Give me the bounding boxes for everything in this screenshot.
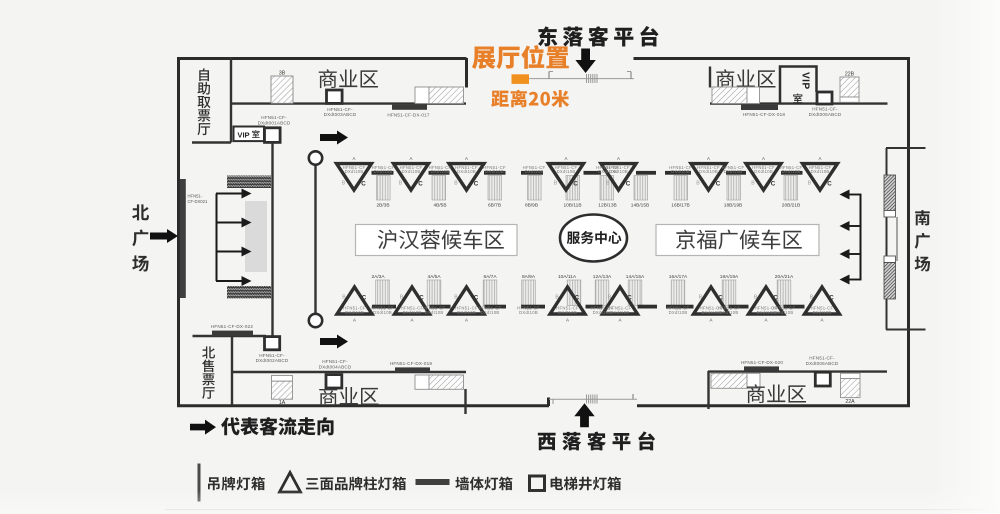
svg-text:C: C (773, 295, 778, 302)
svg-text:16A/17A: 16A/17A (669, 274, 688, 280)
svg-text:A: A (762, 156, 765, 161)
svg-text:A: A (710, 318, 713, 323)
svg-text:3B: 3B (279, 71, 286, 77)
svg-text:DXdt10B: DXdt10B (425, 310, 444, 315)
svg-text:DXdt10B: DXdt10B (813, 310, 832, 315)
svg-text:C: C (829, 295, 834, 302)
svg-text:HFN51-CF-DX-019: HFN51-CF-DX-019 (390, 361, 433, 366)
svg-text:HFN51-: HFN51- (188, 194, 203, 199)
svg-text:10A/11A: 10A/11A (558, 274, 577, 280)
svg-text:HFN51-CF-DX-018: HFN51-CF-DX-018 (743, 112, 786, 117)
svg-text:B: B (808, 181, 812, 187)
svg-text:B: B (454, 181, 458, 187)
svg-text:DXdt005ABCD: DXdt005ABCD (809, 112, 842, 117)
svg-text:A: A (353, 156, 356, 161)
svg-text:HFN51-CF-DX-017: HFN51-CF-DX-017 (387, 113, 430, 118)
svg-text:B: B (342, 295, 346, 301)
svg-text:B: B (554, 181, 558, 187)
svg-text:DXdt10B: DXdt10B (457, 310, 476, 315)
svg-text:22A: 22A (845, 399, 855, 405)
svg-text:B: B (608, 295, 612, 301)
svg-text:HFN51-CF-: HFN51-CF- (322, 359, 348, 364)
svg-text:8A/9A: 8A/9A (522, 274, 536, 280)
svg-text:A: A (566, 318, 569, 323)
svg-text:DXdt10B: DXdt10B (593, 310, 612, 315)
svg-text:DXdt10B: DXdt10B (782, 169, 801, 174)
svg-text:DXdt10B: DXdt10B (485, 169, 504, 174)
svg-text:C: C (575, 295, 580, 302)
svg-text:DXdt10B: DXdt10B (557, 169, 576, 174)
svg-text:DXdt10B: DXdt10B (611, 310, 630, 315)
svg-text:B: B (699, 295, 703, 301)
svg-text:DXdt10B: DXdt10B (724, 169, 743, 174)
svg-text:C: C (474, 295, 479, 302)
svg-text:18B/19B: 18B/19B (724, 203, 742, 209)
svg-text:B: B (754, 295, 758, 301)
svg-text:B: B (454, 295, 458, 301)
svg-text:A: A (821, 318, 824, 323)
svg-text:18A/19A: 18A/19A (720, 274, 739, 280)
svg-text:4A/5A: 4A/5A (427, 274, 441, 280)
svg-text:14A/15A: 14A/15A (626, 274, 645, 280)
svg-text:B: B (696, 181, 700, 187)
svg-text:B: B (751, 181, 755, 187)
svg-text:C: C (626, 181, 631, 188)
svg-text:HFN51-CF-DX-020: HFN51-CF-DX-020 (741, 360, 784, 365)
svg-text:DXdt10B: DXdt10B (431, 169, 450, 174)
svg-text:C: C (827, 181, 832, 188)
svg-text:A: A (819, 156, 822, 161)
svg-text:DXdt10B: DXdt10B (669, 310, 688, 315)
svg-text:C: C (718, 295, 723, 302)
svg-text:VIP: VIP (237, 130, 249, 139)
svg-text:6B/7B: 6B/7B (488, 203, 501, 209)
svg-text:DXdt10B: DXdt10B (598, 169, 617, 174)
svg-text:DXdt10B: DXdt10B (345, 169, 364, 174)
svg-text:HFN51-CF-DX-022: HFN51-CF-DX-022 (211, 324, 254, 329)
svg-text:2B/3B: 2B/3B (376, 203, 389, 209)
svg-text:DXdt10B: DXdt10B (671, 169, 690, 174)
svg-text:20B/21B: 20B/21B (782, 203, 800, 209)
svg-text:DXdt002ABCD: DXdt002ABCD (256, 358, 289, 363)
svg-text:C: C (627, 295, 632, 302)
svg-text:A: A (410, 156, 413, 161)
svg-text:A: A (465, 156, 468, 161)
svg-text:8B/9B: 8B/9B (525, 203, 538, 209)
svg-text:6A/7A: 6A/7A (483, 274, 497, 280)
svg-text:DXdt10B: DXdt10B (525, 169, 544, 174)
svg-text:DXdt10B: DXdt10B (374, 169, 393, 174)
svg-text:DXdt10B: DXdt10B (775, 310, 794, 315)
svg-text:DXdt10B: DXdt10B (811, 169, 830, 174)
svg-text:C: C (474, 181, 479, 188)
svg-text:B: B (342, 181, 346, 187)
svg-text:C: C (771, 181, 776, 188)
svg-text:16B/17B: 16B/17B (671, 203, 689, 209)
svg-text:A: A (765, 318, 768, 323)
svg-text:DXdt001ABCD: DXdt001ABCD (258, 121, 291, 126)
svg-text:1A: 1A (279, 400, 286, 406)
svg-text:HFN51-CF-: HFN51-CF- (812, 107, 838, 112)
svg-text:DXdt003ABCD: DXdt003ABCD (324, 112, 357, 117)
svg-text:DXdt10B: DXdt10B (519, 310, 538, 315)
svg-text:DXdt10B: DXdt10B (373, 310, 392, 315)
svg-text:B: B (400, 295, 404, 301)
svg-text:HFN51-CF-: HFN51-CF- (809, 356, 835, 361)
svg-text:C: C (573, 181, 578, 188)
svg-text:10B/11B: 10B/11B (563, 203, 581, 209)
svg-text:HFN51-CF-: HFN51-CF- (261, 115, 287, 120)
svg-text:DXdt10B: DXdt10B (403, 310, 422, 315)
svg-text:12A/13A: 12A/13A (593, 274, 612, 280)
svg-text:DXdt10B: DXdt10B (720, 310, 739, 315)
svg-text:22B: 22B (845, 72, 855, 78)
svg-text:DXdt10B: DXdt10B (402, 169, 421, 174)
svg-text:20A/21A: 20A/21A (775, 274, 794, 280)
svg-text:DXdt10B: DXdt10B (558, 310, 577, 315)
svg-text:14B/15B: 14B/15B (631, 203, 649, 209)
svg-text:C: C (361, 181, 366, 188)
svg-text:B: B (555, 295, 559, 301)
svg-text:C: C (419, 295, 424, 302)
svg-text:A: A (411, 318, 414, 323)
svg-text:DXdt10B: DXdt10B (699, 169, 718, 174)
svg-text:A: A (707, 156, 710, 161)
svg-text:B: B (810, 295, 814, 301)
svg-text:HFN51-CF-: HFN51-CF- (327, 107, 353, 112)
svg-text:VIP: VIP (800, 72, 811, 90)
svg-text:12B/13B: 12B/13B (598, 203, 616, 209)
svg-text:A: A (619, 318, 622, 323)
svg-text:A: A (465, 318, 468, 323)
svg-text:A: A (353, 318, 356, 323)
svg-text:C: C (418, 181, 423, 188)
svg-text:B: B (606, 181, 610, 187)
svg-text:2A/3A: 2A/3A (371, 274, 385, 280)
svg-text:HFN51-CF-: HFN51-CF- (259, 353, 285, 358)
svg-text:DXdt004ABCD: DXdt004ABCD (319, 364, 352, 369)
svg-text:DXdt10B: DXdt10B (754, 169, 773, 174)
svg-text:CF-DX021: CF-DX021 (188, 199, 208, 204)
svg-text:DXdt10B: DXdt10B (457, 169, 476, 174)
svg-text:4B/5B: 4B/5B (433, 203, 446, 209)
svg-text:A: A (617, 156, 620, 161)
svg-text:DXdt006ABCD: DXdt006ABCD (806, 361, 839, 366)
svg-text:DXdt10B: DXdt10B (481, 310, 500, 315)
svg-text:B: B (399, 181, 403, 187)
svg-text:C: C (362, 295, 367, 302)
svg-text:DXdt10B: DXdt10B (345, 310, 364, 315)
svg-text:A: A (565, 156, 568, 161)
svg-text:C: C (716, 181, 721, 188)
